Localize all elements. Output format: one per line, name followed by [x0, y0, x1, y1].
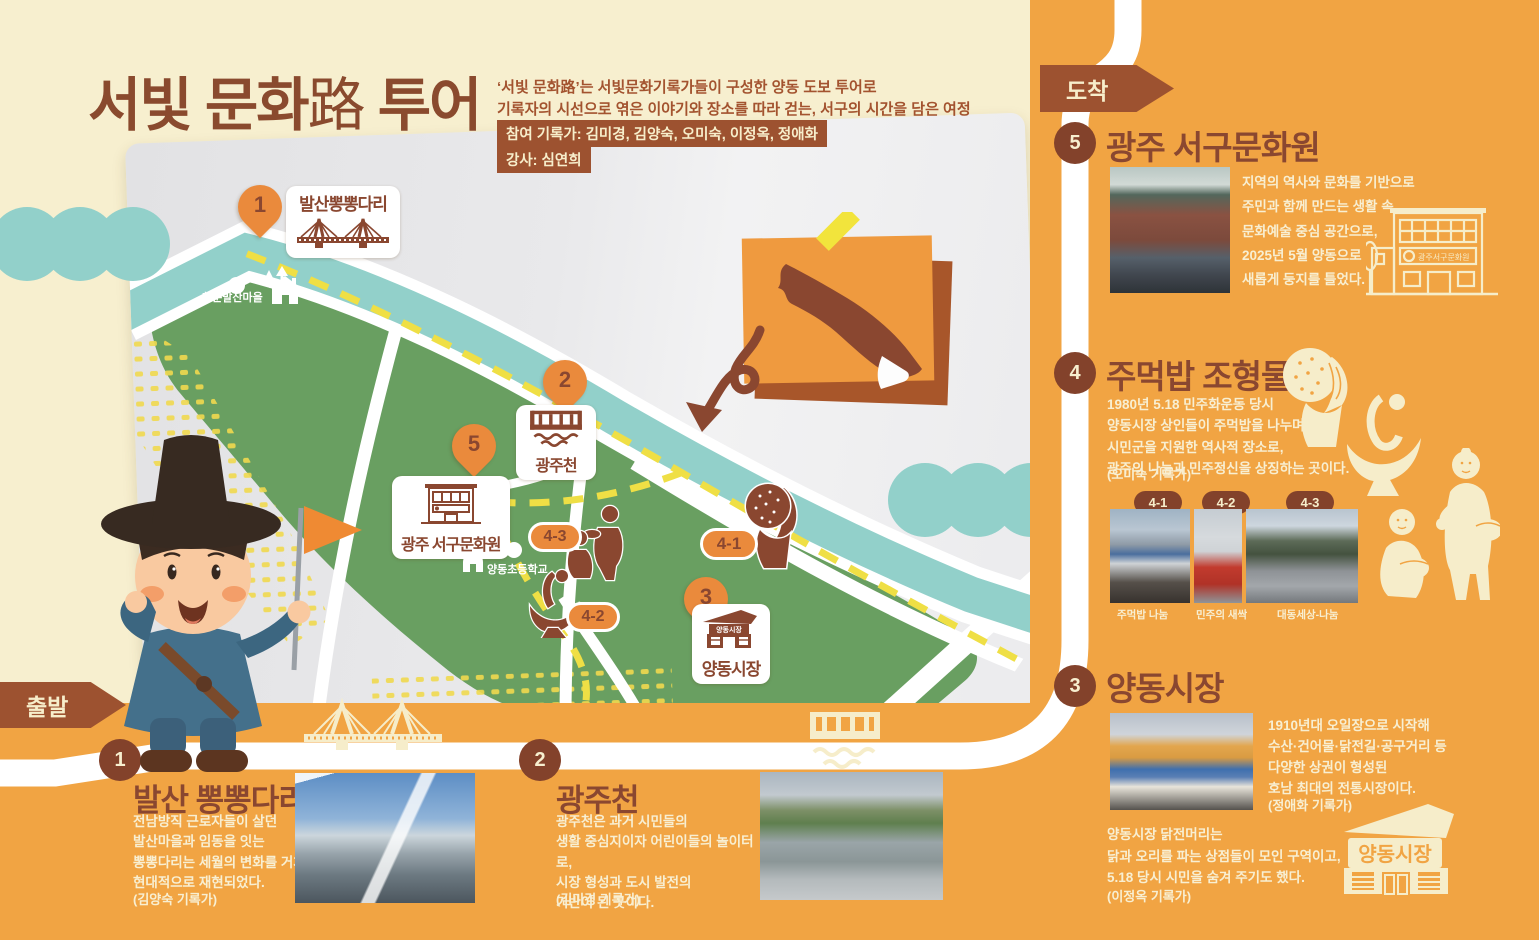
pin-1-label: 발산뽕뽕다리: [295, 190, 391, 215]
pin-2-label: 광주천: [525, 452, 587, 476]
poster-title: 서빛 문화路 투어: [88, 58, 480, 142]
map-badge-4-2: 4-2: [566, 602, 620, 632]
pin-3-label: 양동시장: [701, 655, 761, 680]
pin-2-number: 2: [543, 367, 587, 393]
stop1-credit: (김양숙 기록가): [133, 889, 217, 908]
market-illustration-sign: 양동시장: [1358, 843, 1432, 866]
stop2-credit: (김미경 기록가): [556, 889, 640, 908]
photo-stop1: [295, 773, 475, 903]
map-pin-1: 1: [238, 185, 282, 243]
curved-arrow-icon: [704, 330, 760, 416]
photo-4-3: [1246, 509, 1358, 603]
bridge-water-cream-icon: [808, 710, 882, 776]
school-dot: [506, 542, 522, 558]
culture-center-sign-text: 광주서구문화원: [1418, 252, 1470, 262]
market-building-icon: 양동시장: [701, 608, 761, 650]
stop5-title: 광주 서구문화원: [1106, 121, 1320, 169]
map-label-culture-center: 광주 서구문화원: [392, 476, 510, 559]
rail-stop-5: 5: [1054, 122, 1096, 164]
flag-pole: [294, 508, 301, 670]
photo-stop3: [1110, 713, 1253, 810]
tour-description-line1: ‘서빛 문화路’는 서빛문화기록가들이 구성한 양동 도보 투어로: [497, 76, 877, 97]
caption-4-1: 주먹밥 나눔: [1117, 607, 1168, 622]
title-part2: 투어: [364, 73, 481, 138]
teal-circles-left: [0, 207, 175, 281]
caption-4-3: 대동세상-나눔: [1277, 607, 1338, 622]
arrow-head-icon: [686, 402, 722, 432]
stop4-credit: (오미숙 기록가): [1107, 464, 1191, 483]
culture-center-illustration: 광주서구문화원: [1366, 196, 1498, 298]
sprout-sculpture-cream-icon: [1345, 388, 1423, 496]
suspension-bridge-icon: [295, 215, 391, 249]
district-sticky-note: [678, 212, 968, 452]
title-part1: 서빛 문화: [88, 73, 308, 138]
map-label-ppongppong-bridge: 발산뽕뽕다리: [286, 186, 400, 258]
end-label: 도착: [1066, 72, 1108, 106]
instructor-badge: 강사: 심연희: [497, 146, 591, 173]
caption-4-2: 민주의 새싹: [1196, 607, 1247, 622]
map-pin-5: 5: [452, 424, 496, 482]
sitting-grandma-icon: [1376, 506, 1436, 602]
culture-center-building-icon: [419, 480, 483, 526]
rail-stop-4: 4: [1054, 352, 1096, 394]
flag-icon: [304, 506, 362, 554]
map-label-gwangjucheon: 광주천: [516, 405, 596, 480]
pin-5-number: 5: [452, 431, 496, 457]
gat-hat-crown: [152, 435, 230, 524]
village-houses-icon: [256, 266, 306, 306]
mascot-character: [86, 420, 366, 772]
market-sign-text: 양동시장: [716, 625, 742, 634]
stop3-description2: 양동시장 닭전머리는 닭과 오리를 파는 상점들이 모인 구역이고, 5.18 …: [1107, 824, 1367, 889]
start-label: 출발: [26, 688, 68, 722]
stop3-credit: (정애화 기록가): [1268, 795, 1352, 814]
tour-description-line2: 기록자의 시선으로 엮은 이야기와 장소를 따라 걷는, 서구의 시간을 담은 …: [497, 98, 971, 119]
village-label: 청춘발산마을: [202, 289, 263, 305]
school-icon: [459, 549, 487, 575]
market-illustration: 양동시장: [1342, 798, 1456, 898]
stop3-description: 1910년대 오일장으로 시작해 수산·건어물·닭전길·공구거리 등 다양한 상…: [1268, 716, 1488, 800]
stop4-title: 주먹밥 조형물: [1106, 350, 1290, 398]
pin-1-number: 1: [238, 192, 282, 218]
title-hanja: 路: [308, 73, 364, 138]
photo-4-2: [1194, 509, 1242, 603]
photo-stop5: [1110, 167, 1230, 293]
photo-stop2: [760, 772, 943, 900]
rail-stop-3: 3: [1054, 665, 1096, 707]
map-label-market: 양동시장 양동시장: [692, 604, 770, 684]
stop3-credit2: (이정옥 기록가): [1107, 886, 1191, 905]
map-badge-4-1: 4-1: [700, 528, 758, 560]
recorders-badge: 참여 기록가: 김미경, 김양숙, 오미숙, 이정옥, 정애화: [497, 120, 827, 147]
map-badge-4-3: 4-3: [528, 522, 582, 552]
tour-poster: 서빛 문화路 투어 ‘서빛 문화路’는 서빛문화기록가들이 구성한 양동 도보 …: [0, 0, 1539, 940]
standing-woman-basket-icon: [1436, 448, 1500, 604]
photo-4-1: [1110, 509, 1190, 603]
bridge-over-water-icon: [525, 409, 587, 447]
rail-stop-2: 2: [519, 739, 561, 781]
stop3-title: 양동시장: [1106, 662, 1223, 710]
mascot-boot: [196, 750, 248, 772]
mascot-boot: [140, 750, 192, 772]
